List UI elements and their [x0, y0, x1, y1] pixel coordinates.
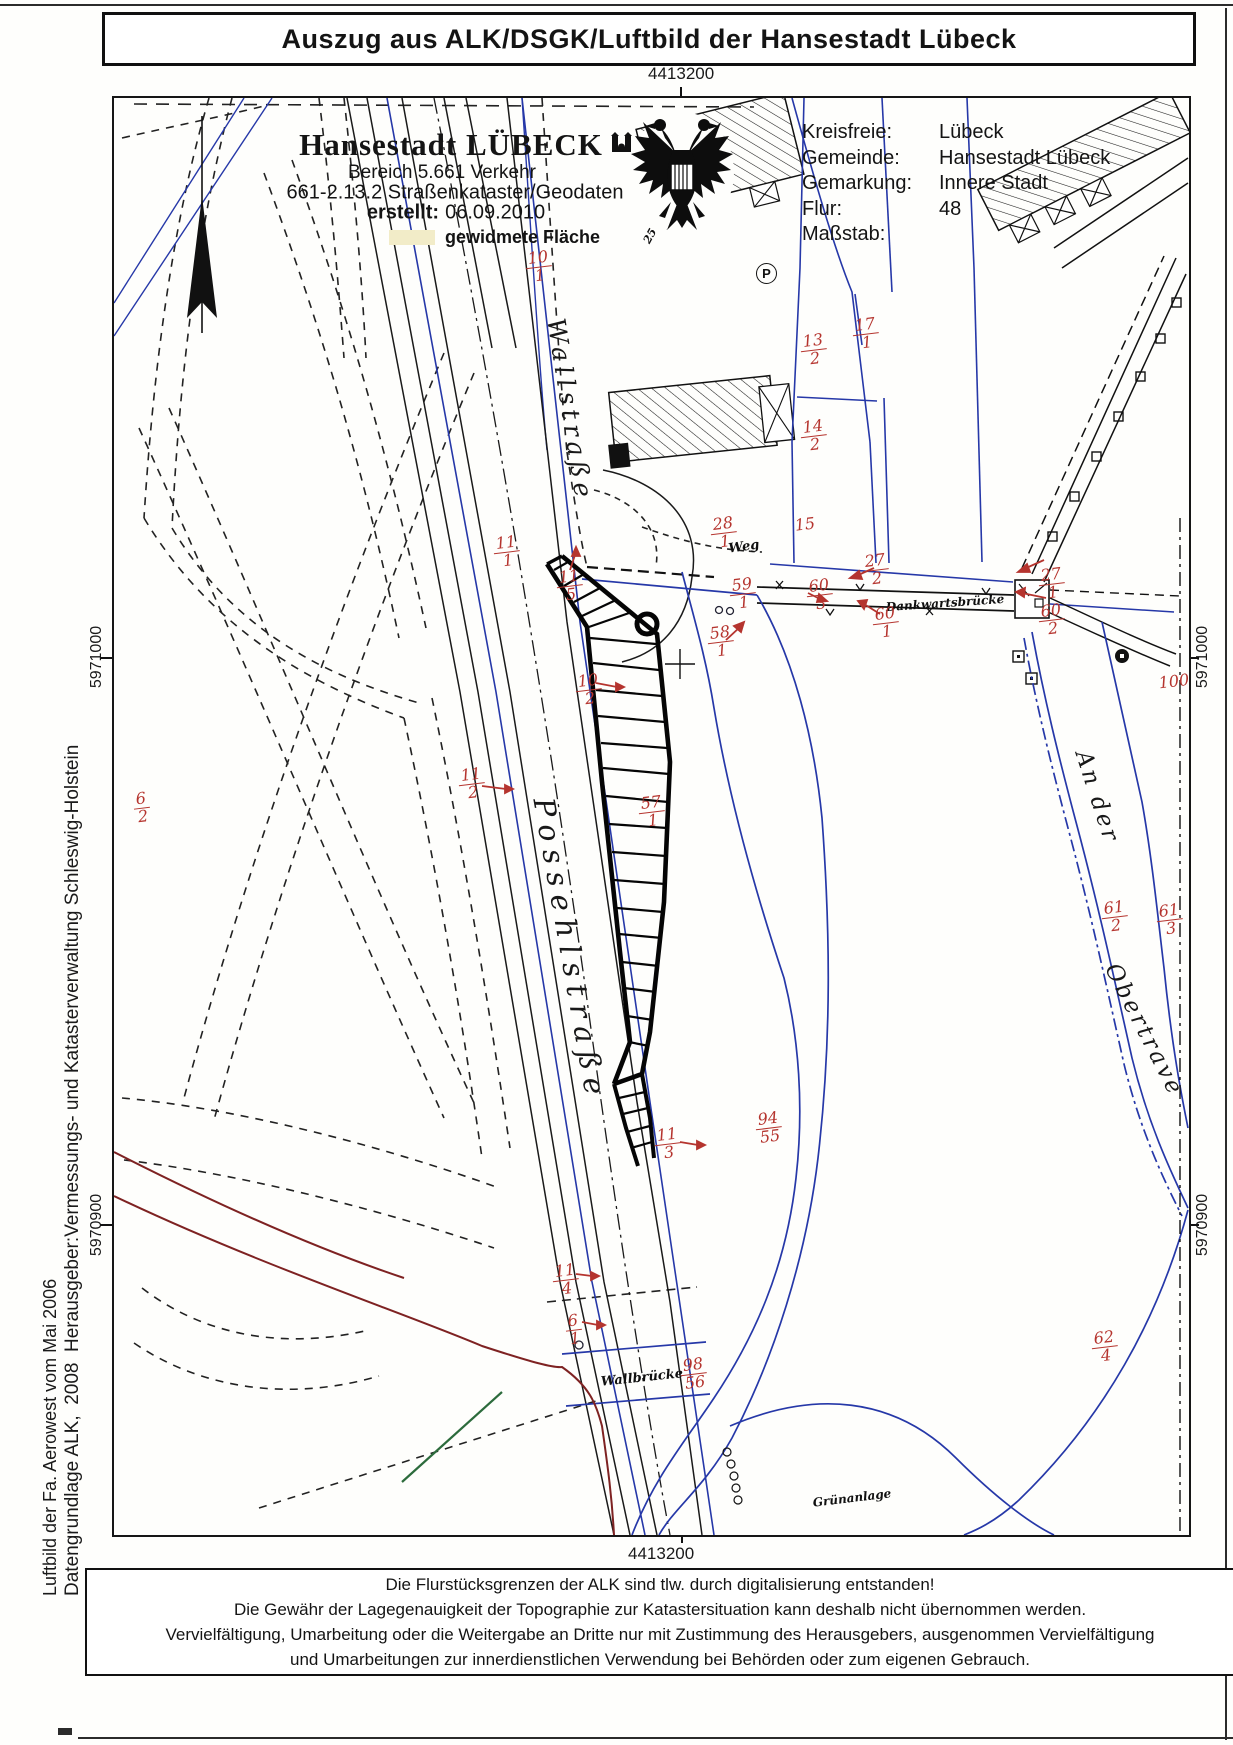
scan-border-bottom — [78, 1737, 1233, 1739]
parcel-number: 111 — [492, 533, 522, 571]
parcel-number: 102 — [574, 671, 604, 709]
parcel-number: 171 — [851, 315, 881, 353]
parcel-number: 272 — [861, 551, 891, 589]
street-label: Obertrave — [1099, 959, 1188, 1101]
parcel-number: 101 — [524, 248, 554, 286]
parcel-number: 132 — [799, 331, 829, 369]
map-labels-layer: P WallstraßePossehlstraßeAn derObertrave… — [114, 98, 1189, 1535]
street-label: An der — [1070, 747, 1124, 846]
parcel-number: 9856 — [679, 1355, 709, 1393]
grid-tick — [100, 1224, 112, 1226]
parcel-number: 571 — [637, 793, 667, 831]
title-bar: Auszug aus ALK/DSGK/Luftbild der Hansest… — [102, 12, 1196, 66]
scanned-map-page: Auszug aus ALK/DSGK/Luftbild der Hansest… — [0, 0, 1233, 1745]
disclaimer-line: und Umarbeitungen zur innerdienstlichen … — [87, 1648, 1233, 1672]
parcel-number: 624 — [1090, 1328, 1120, 1366]
grid-tick — [680, 87, 682, 96]
disclaimer-box: Die Flurstücksgrenzen der ALK sind tlw. … — [85, 1568, 1233, 1676]
place-label: Grünanlage — [812, 1486, 892, 1510]
parcel-number: 601 — [871, 604, 901, 642]
parcel-number: 115 — [555, 567, 585, 605]
parcel-number: 112 — [457, 765, 487, 803]
parcel-number: 9455 — [754, 1109, 784, 1147]
margin-source-note: Luftbild der Fa. Aerowest vom Mai 2006 — [40, 1279, 61, 1596]
disclaimer-line: Die Gewähr der Lagegenauigkeit der Topog… — [87, 1598, 1233, 1622]
street-label: Possehlstraße — [526, 795, 613, 1105]
parcel-number: 61 — [564, 1312, 584, 1348]
parking-symbol: P — [756, 263, 777, 284]
street-label: Wallstraße — [541, 316, 599, 504]
parcel-number: 15 — [791, 515, 819, 535]
scan-border-top — [0, 4, 1233, 6]
parcel-number: 591 — [728, 575, 758, 613]
map-area: Hansestadt LÜBECK Bereich 5.661 Verkehr … — [112, 96, 1191, 1537]
parcel-number: 114 — [551, 1261, 581, 1299]
parcel-number: 62 — [132, 790, 152, 826]
parcel-number: 113 — [653, 1125, 683, 1163]
disclaimer-line: Vervielfältigung, Umarbeitung oder die W… — [87, 1623, 1233, 1647]
parcel-number: 613 — [1155, 901, 1185, 939]
parcel-number: 603 — [805, 576, 835, 614]
margin-publisher-note: Datengrundlage ALK, 2008 Herausgeber:Ver… — [62, 745, 84, 1596]
coordinate-bottom: 4413200 — [628, 1544, 694, 1564]
parcel-number: 612 — [1100, 898, 1130, 936]
parcel-number: 271 — [1037, 565, 1067, 603]
coordinate-top: 4413200 — [648, 64, 714, 84]
parcel-number: 142 — [799, 417, 829, 455]
grid-tick — [100, 657, 112, 659]
disclaimer-line: Die Flurstücksgrenzen der ALK sind tlw. … — [87, 1573, 1233, 1597]
scan-mark — [58, 1728, 72, 1735]
place-label: Dankwartsbrücke — [885, 592, 1004, 614]
parcel-number: 581 — [706, 623, 736, 661]
scan-border-right — [1225, 8, 1227, 1740]
page-title: Auszug aus ALK/DSGK/Luftbild der Hansest… — [281, 24, 1016, 55]
place-label: 25 — [641, 226, 660, 246]
place-label: Wallbrücke — [600, 1366, 683, 1390]
parcel-number: 281 — [709, 514, 739, 552]
parcel-number: 602 — [1037, 601, 1067, 639]
parcel-number: 100 — [1155, 671, 1193, 692]
